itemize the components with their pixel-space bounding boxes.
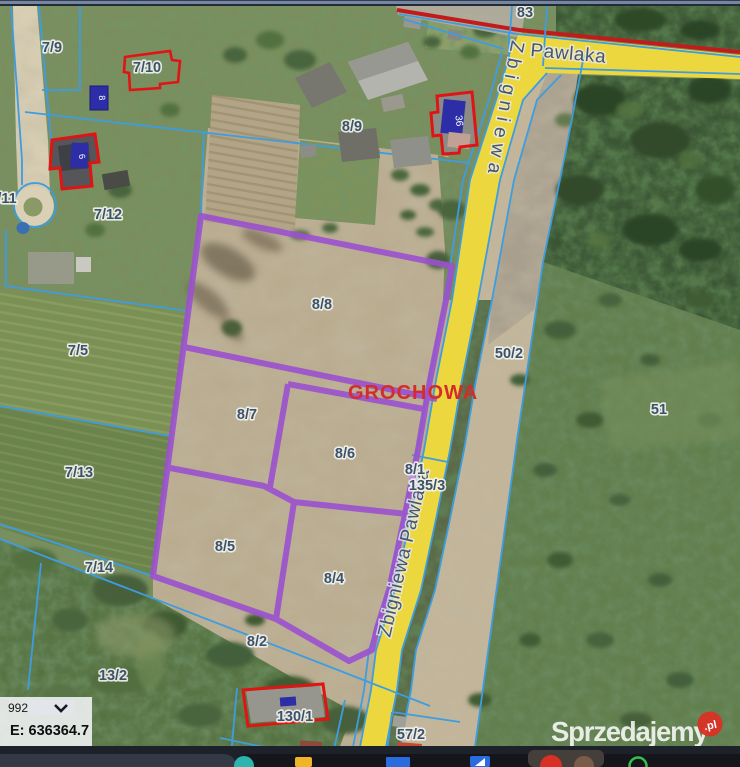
svg-text:7/13: 7/13 — [65, 465, 93, 481]
svg-text:8/2: 8/2 — [247, 634, 267, 650]
svg-text:8/6: 8/6 — [335, 446, 355, 462]
svg-text:36: 36 — [452, 115, 464, 128]
svg-text:8: 8 — [97, 95, 107, 101]
svg-text:8/7: 8/7 — [237, 407, 257, 423]
svg-text:51: 51 — [651, 402, 667, 418]
svg-text:GROCHOWA: GROCHOWA — [348, 382, 478, 404]
svg-text:7/12: 7/12 — [94, 207, 122, 223]
svg-text:7/9: 7/9 — [42, 40, 62, 56]
svg-text:135/3: 135/3 — [409, 478, 445, 494]
svg-text:E: 636364.7: E: 636364.7 — [10, 723, 89, 739]
svg-text:8/4: 8/4 — [324, 571, 344, 587]
svg-text:8/9: 8/9 — [342, 119, 362, 135]
svg-text:8/1: 8/1 — [405, 462, 425, 478]
svg-text:130/1: 130/1 — [277, 709, 313, 725]
svg-text:13/2: 13/2 — [99, 668, 127, 684]
svg-text:57/2: 57/2 — [397, 727, 425, 743]
svg-text:7/14: 7/14 — [85, 560, 113, 576]
svg-text:8/8: 8/8 — [312, 297, 332, 313]
svg-text:Sprzedajemy: Sprzedajemy — [551, 716, 709, 747]
svg-text:50/2: 50/2 — [495, 346, 523, 362]
svg-text:7/5: 7/5 — [68, 343, 88, 359]
svg-text:8/5: 8/5 — [215, 539, 235, 555]
svg-text:83: 83 — [517, 5, 533, 21]
svg-text:7/10: 7/10 — [133, 60, 161, 76]
svg-text:992: 992 — [8, 701, 28, 715]
svg-text:/11: /11 — [0, 191, 17, 207]
